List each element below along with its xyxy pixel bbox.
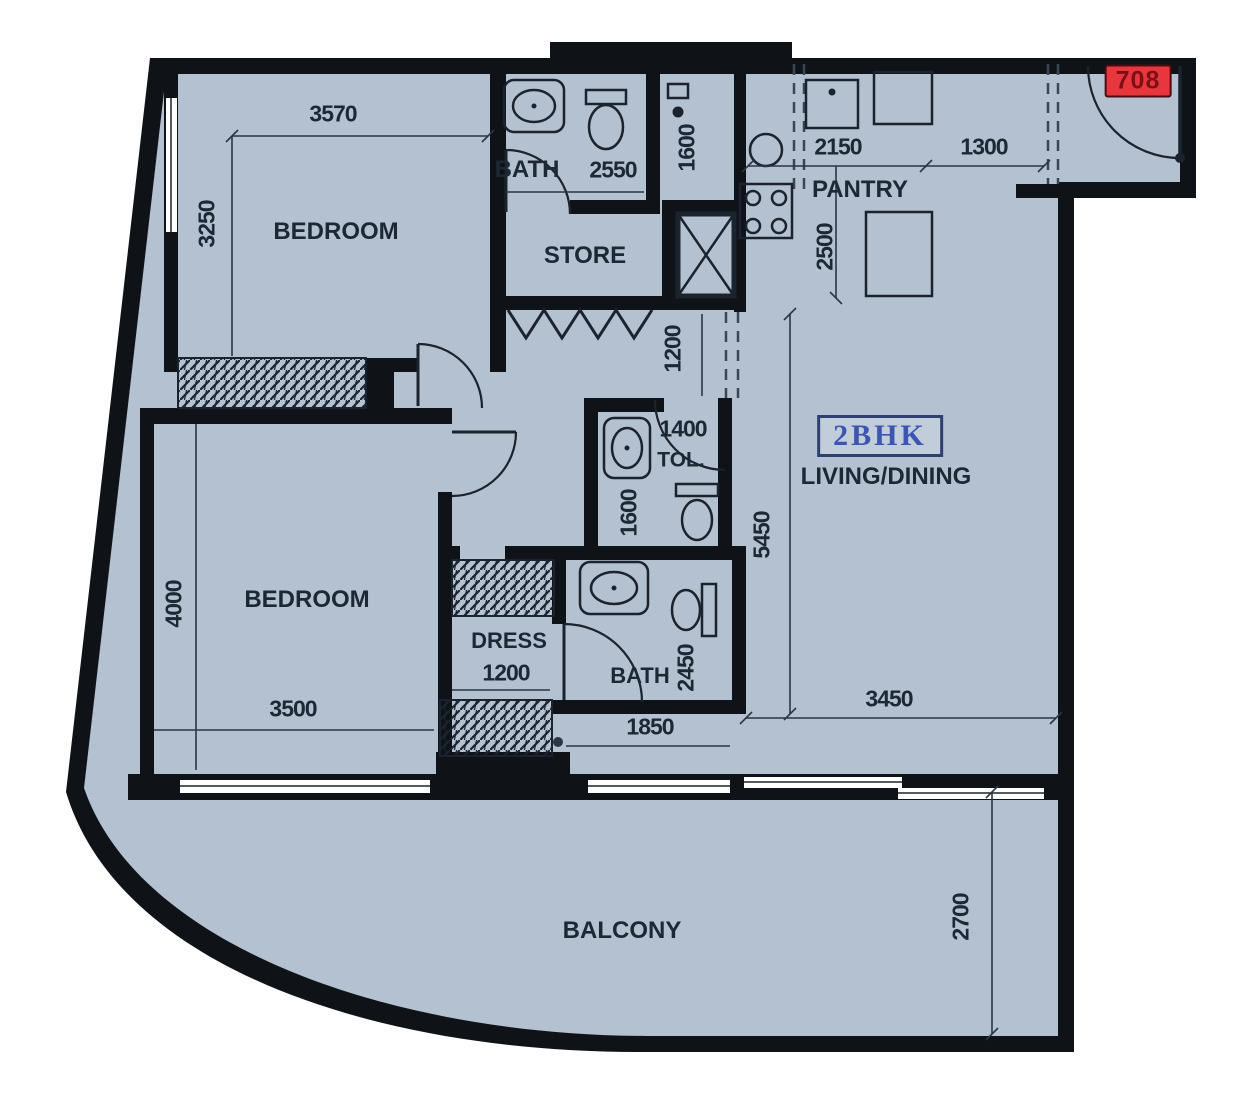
unit-number-badge: 708 xyxy=(1105,65,1172,98)
bath-bottom-label: BATH xyxy=(610,665,669,687)
bath-bottom-width-dim: 1850 xyxy=(626,716,673,739)
dress-width-dim: 1200 xyxy=(482,662,529,685)
balcony-depth-dim: 2700 xyxy=(950,893,973,940)
bath-top-label: BATH xyxy=(495,158,560,182)
dress-label: DRESS xyxy=(471,630,547,652)
toilet-depth-dim: 1600 xyxy=(618,489,641,536)
pantry-depth-dim: 2500 xyxy=(814,223,837,270)
bedroom-bottom-depth-dim: 4000 xyxy=(163,580,186,627)
balcony-label: BALCONY xyxy=(563,919,682,943)
bedroom-bottom-width-dim: 3500 xyxy=(269,698,316,721)
bath-top-width-dim: 2550 xyxy=(589,159,636,182)
store-label: STORE xyxy=(544,244,626,268)
bedroom-top-width-dim: 3570 xyxy=(309,103,356,126)
bedroom-bottom-label: BEDROOM xyxy=(244,588,369,612)
pantry-left-dim: 2150 xyxy=(814,136,861,159)
living-dining-label: LIVING/DINING xyxy=(801,465,972,489)
bedroom-top-label: BEDROOM xyxy=(273,220,398,244)
bath-top-strip-dim: 1600 xyxy=(676,124,699,171)
unit-type-badge: 2BHK xyxy=(817,415,943,457)
bath-bottom-depth-dim: 2450 xyxy=(675,644,698,691)
toilet-label: TOL. xyxy=(657,450,704,471)
corridor-width-dim: 1200 xyxy=(662,325,685,372)
living-width-dim: 3450 xyxy=(865,688,912,711)
pantry-label: PANTRY xyxy=(812,178,908,202)
floor-plan: 3570 3250 BEDROOM BATH 2550 1600 STORE P… xyxy=(0,0,1259,1100)
toilet-width-dim: 1400 xyxy=(659,418,706,441)
living-depth-dim: 5450 xyxy=(751,511,774,558)
bedroom-top-depth-dim: 3250 xyxy=(196,200,219,247)
pantry-right-dim: 1300 xyxy=(960,136,1007,159)
